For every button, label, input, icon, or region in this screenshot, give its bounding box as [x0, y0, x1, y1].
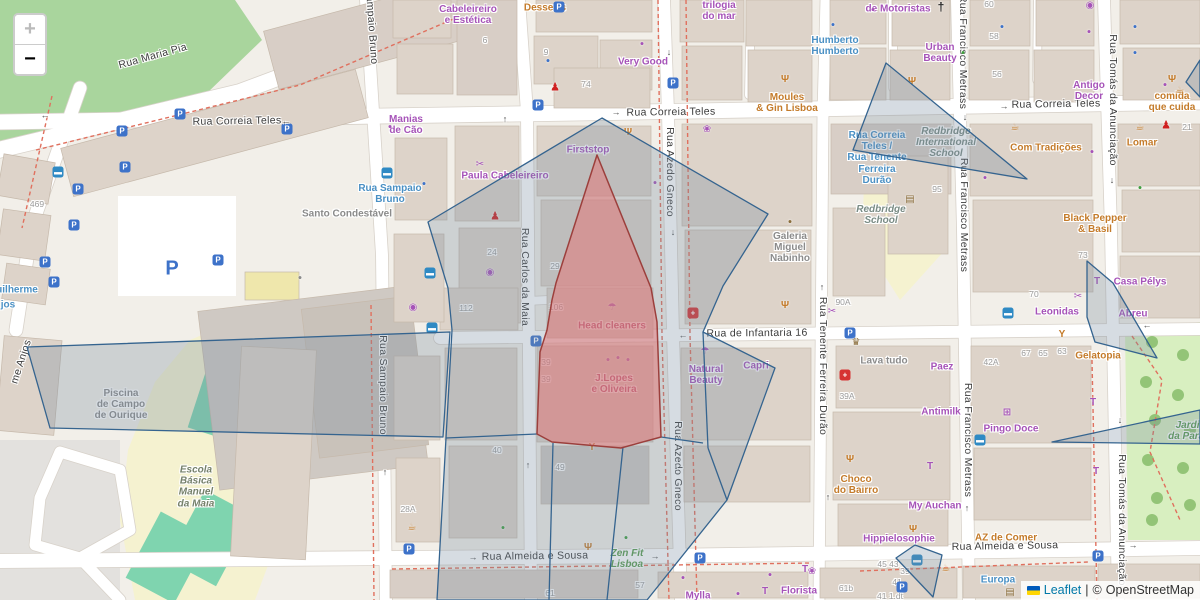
- attribution-separator: |: [1085, 583, 1088, 597]
- zoom-in-button[interactable]: +: [15, 15, 45, 44]
- map-canvas[interactable]: Rua Maria PiaRua Correia TelesRua Correi…: [0, 0, 1200, 600]
- overlay-polygon-cell-corner[interactable]: [1186, 60, 1200, 97]
- overlay-polygon-cell-east-wedge[interactable]: [1052, 410, 1200, 444]
- copyright-symbol: ©: [1093, 583, 1102, 597]
- zoom-out-button[interactable]: −: [15, 44, 45, 74]
- attribution-bar: Leaflet | © OpenStreetMap: [1021, 581, 1200, 600]
- leaflet-link[interactable]: Leaflet: [1044, 583, 1082, 597]
- zoom-control: + −: [13, 13, 47, 76]
- overlay-polygon-cell-west[interactable]: [27, 332, 450, 437]
- overlay-polygons-layer: [0, 0, 1200, 600]
- overlay-polygon-cell-south-diamond[interactable]: [896, 545, 942, 597]
- openstreetmap-link[interactable]: OpenStreetMap: [1106, 583, 1194, 597]
- overlay-polygon-cell-northeast[interactable]: [853, 63, 1027, 179]
- overlay-polygon-cell-casa-pelys[interactable]: [1087, 261, 1157, 358]
- ukraine-flag-icon: [1027, 586, 1040, 595]
